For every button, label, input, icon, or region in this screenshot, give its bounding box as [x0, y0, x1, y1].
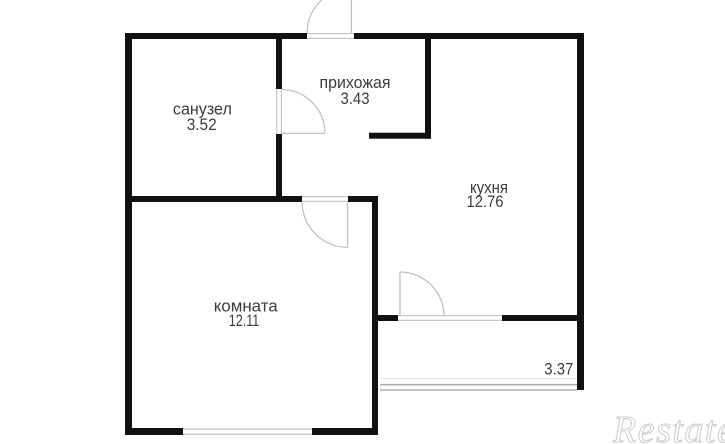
svg-text:3.43: 3.43	[341, 89, 370, 108]
svg-text:12.76: 12.76	[467, 192, 504, 211]
svg-text:12.11: 12.11	[229, 311, 260, 330]
svg-text:3.37: 3.37	[544, 359, 573, 378]
svg-text:3.52: 3.52	[187, 115, 217, 134]
